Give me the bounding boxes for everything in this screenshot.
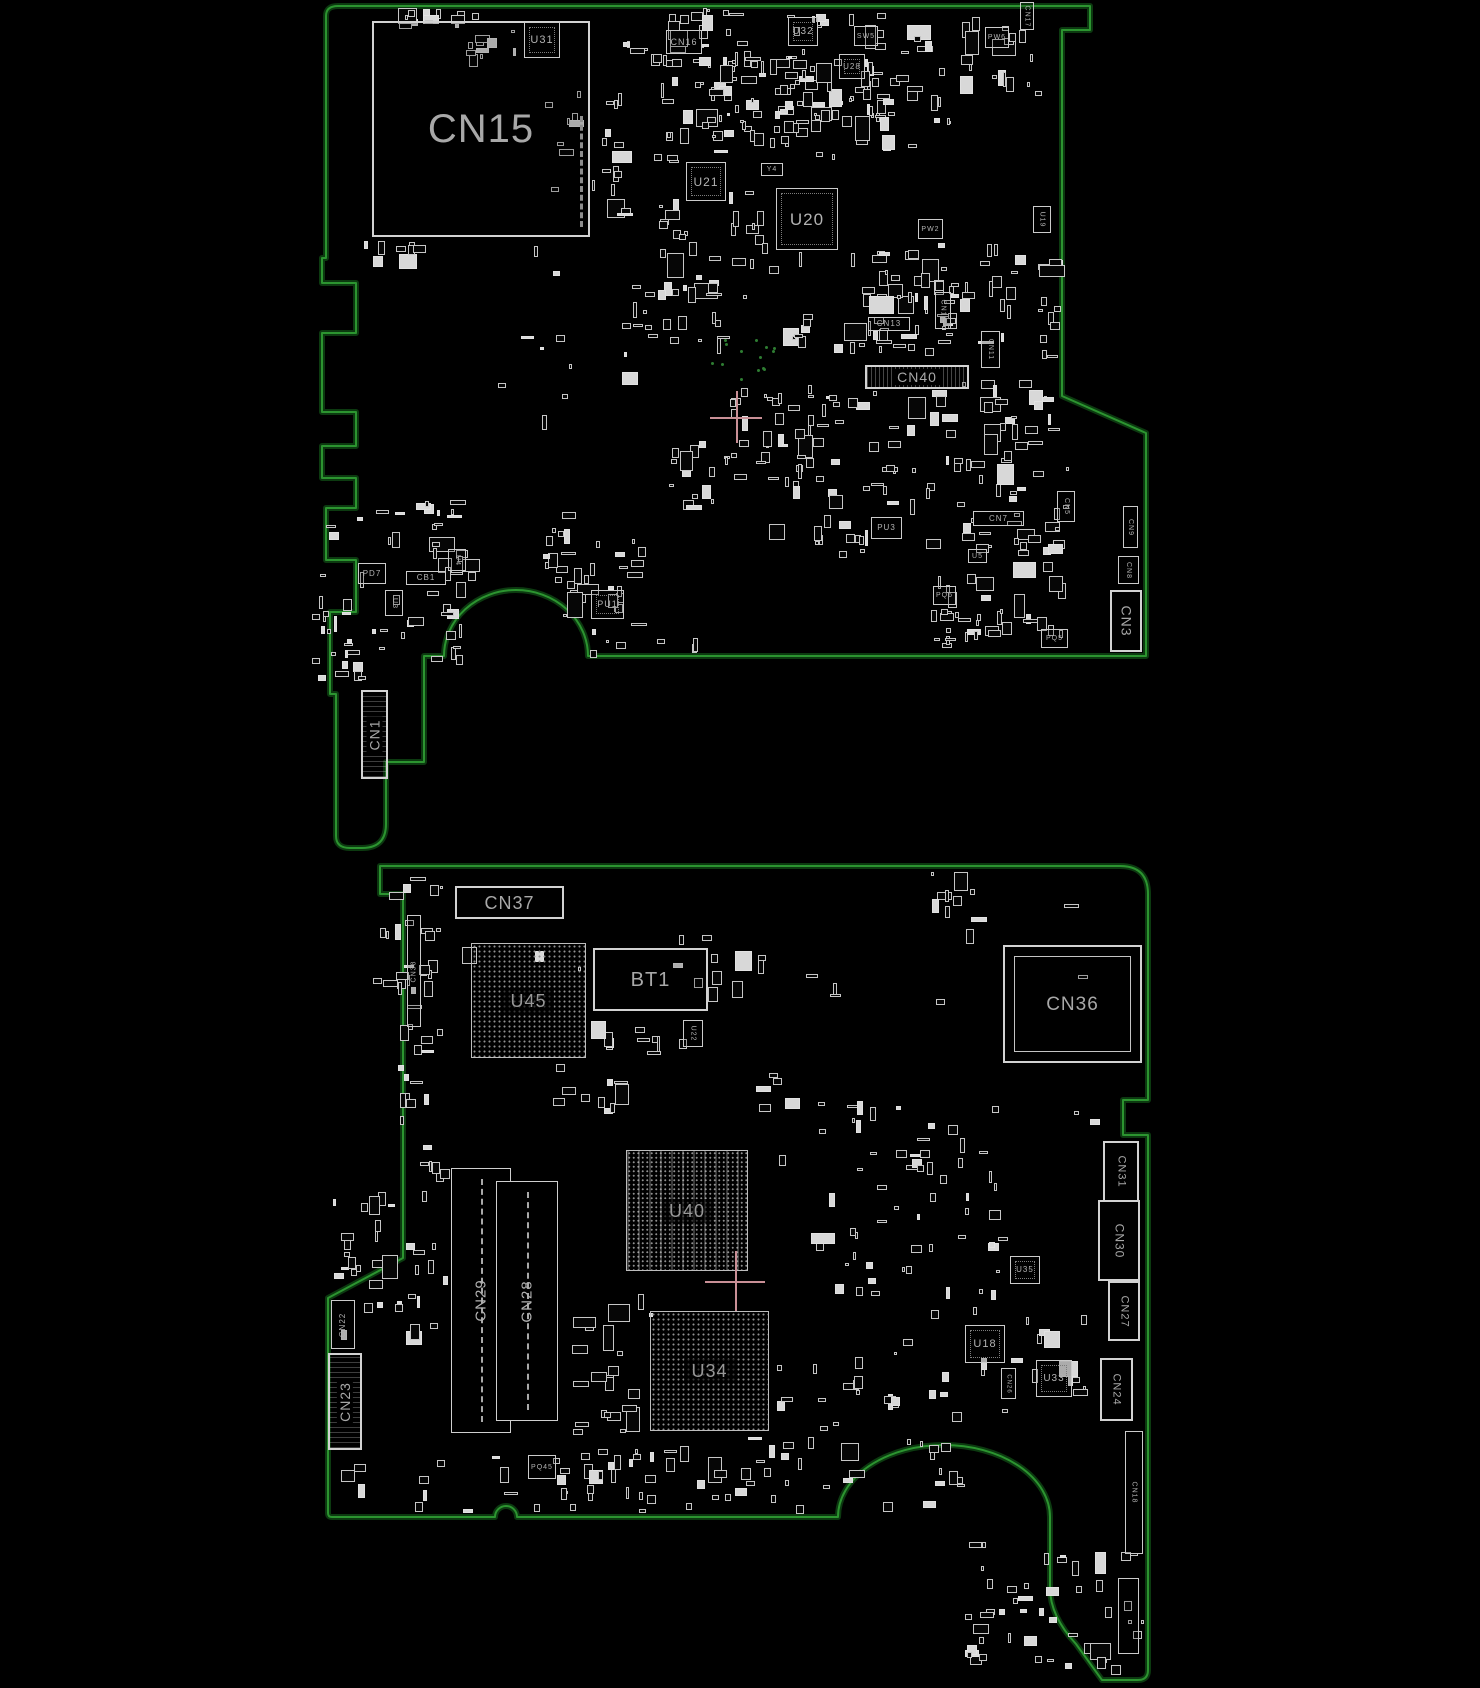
small-component [701,44,709,47]
small-component [708,283,718,293]
small-component [567,592,583,618]
small-component [323,611,329,617]
component-label: U34 [684,1359,734,1383]
component-label: PQ5 [1046,635,1063,642]
small-component [1007,1586,1017,1593]
small-component [857,1168,863,1171]
component-label: CN30 [1113,1223,1125,1258]
small-component [771,1495,776,1503]
small-component [1028,441,1043,445]
small-component [732,981,743,998]
small-component [803,314,813,320]
small-component [380,629,388,632]
component-label: CN8 [1125,561,1132,578]
small-component [632,285,641,289]
small-component [562,394,568,399]
small-component [1023,619,1038,623]
component-label: CN29 [473,1279,488,1321]
small-component [424,1094,429,1105]
small-component [671,459,677,464]
small-component [631,623,647,626]
component-cn24: CN24 [1100,1358,1133,1421]
small-component [564,529,570,544]
small-component [492,1456,500,1459]
small-component [639,1492,643,1500]
small-component [780,85,788,95]
small-component [877,13,886,19]
small-component [572,1345,588,1354]
small-component [980,1612,994,1618]
small-component [623,42,630,47]
small-component [622,372,638,385]
small-component [602,169,611,173]
small-component [327,629,331,634]
small-component [931,610,937,622]
small-component [798,464,802,479]
small-component [358,676,366,680]
small-component [885,270,888,275]
small-component [854,1376,863,1389]
small-component [417,1296,420,1308]
small-component [680,15,689,24]
small-component [591,1372,607,1382]
small-component [614,171,622,178]
component-u34: U34 [650,1311,769,1431]
small-component [711,954,718,963]
small-component [344,1240,351,1250]
small-component [955,612,959,618]
small-component [965,1614,972,1620]
small-component [989,1242,995,1248]
small-component [555,577,562,583]
small-component [679,234,686,240]
via-dot [740,378,743,381]
small-component [1035,91,1042,96]
small-component [423,1145,432,1150]
small-component [398,982,402,995]
small-component [425,931,435,941]
small-component [321,626,325,634]
small-component [979,532,991,535]
small-component [692,494,698,499]
small-component [995,399,1008,405]
small-component [859,343,865,347]
component-pq5: PQ5 [1041,629,1068,648]
small-component [903,1339,913,1346]
component-label: CN40 [894,369,940,385]
component-u4: U4 [448,549,466,571]
small-component [813,438,824,447]
crosshair-fiducial [710,391,762,443]
small-component [957,502,965,507]
small-component [561,1488,567,1500]
small-component [873,331,878,340]
component-u33: U33 [1036,1360,1072,1397]
small-component [312,614,320,620]
small-component [873,72,883,75]
small-component [938,243,945,248]
small-component [626,1487,629,1499]
small-component [1090,1119,1100,1125]
small-component [1004,451,1012,461]
small-component [562,512,576,519]
component-cn3: CN3 [1110,590,1142,652]
small-component [432,542,440,547]
small-component [936,396,946,407]
small-component [1048,544,1063,554]
component-label: CN38 [411,960,418,982]
small-component [829,495,843,509]
small-component [865,530,868,546]
component-label: PU3 [877,524,896,532]
small-component [714,1470,727,1478]
small-component [813,1364,817,1374]
small-component [624,352,627,357]
small-component [406,1243,415,1250]
component-u21: U21 [686,162,726,201]
small-component [846,534,855,543]
small-component [782,444,788,447]
small-component [540,347,544,350]
small-component [709,256,721,261]
small-component [1010,491,1017,495]
small-component [1074,1111,1079,1115]
small-component [608,1366,619,1376]
small-component [434,523,443,526]
small-component [948,1125,958,1135]
small-component [869,442,879,452]
component-cn28: CN28 [496,1181,558,1421]
component-label: U19 [1039,212,1046,228]
small-component [929,1445,939,1453]
small-component [938,340,951,344]
small-component [896,1106,901,1110]
small-component [775,413,784,425]
small-component [979,1289,983,1294]
small-component [936,999,945,1005]
small-component [989,1210,1001,1220]
small-component [364,1303,373,1313]
small-component [935,281,944,291]
small-component [751,98,754,103]
small-component [331,652,336,656]
small-component [686,1503,692,1510]
small-component [1040,335,1047,343]
component-bottom-connector-22 [1118,1578,1139,1654]
small-component [553,271,560,276]
small-component [762,243,768,254]
small-component [706,293,722,296]
small-component [432,1243,436,1250]
small-component [797,455,806,459]
small-component [735,1488,747,1496]
small-component [908,344,915,351]
small-component [654,154,662,161]
small-component [669,160,679,163]
via-dot [724,339,727,342]
small-component [372,629,376,634]
small-component [1025,426,1038,434]
small-component [926,488,930,499]
small-component [756,461,766,464]
small-component [446,631,456,640]
small-component [660,249,666,258]
small-component [592,180,595,191]
component-label: CN27 [1119,1295,1130,1327]
small-component [945,638,956,641]
small-component [712,971,722,985]
small-component [946,456,949,465]
small-component [1072,1561,1079,1576]
small-component [753,111,762,118]
small-component [1000,299,1005,312]
small-component [833,402,840,407]
component-cn8: CN8 [1118,556,1139,584]
small-component [415,1265,419,1275]
small-component [942,1372,949,1382]
small-component [376,510,389,514]
via-dot [759,356,762,359]
small-component [907,425,915,436]
small-component [908,292,912,303]
small-component [774,126,780,133]
small-component [863,89,871,100]
small-component [652,1036,658,1043]
small-component [1006,77,1014,92]
small-component [932,899,939,913]
small-component [961,55,973,65]
small-component [603,1325,614,1351]
small-component [1039,1608,1044,1616]
component-cb1: CB1 [406,571,446,585]
small-component [1013,562,1036,578]
small-component [764,1468,771,1477]
small-component [908,144,917,148]
small-component [887,501,899,505]
component-u5: U5 [968,549,987,563]
small-component [437,510,440,516]
small-component [608,1304,630,1322]
small-component [587,1485,594,1494]
crosshair-fiducial [705,1251,765,1311]
small-component [829,395,837,401]
small-component [776,59,790,68]
small-component [773,1078,782,1085]
small-component [740,120,744,123]
small-component [386,931,389,939]
small-component [923,1501,936,1508]
small-component [679,935,684,945]
small-component [672,77,678,86]
small-component [1055,527,1060,531]
small-component [1047,1659,1054,1662]
small-component [615,552,625,557]
small-component [839,551,847,558]
component-bt1: BT1 [593,948,708,1011]
small-component [715,320,721,327]
small-component [856,1287,863,1296]
small-component [698,339,702,342]
small-component [552,528,556,533]
small-component [342,612,351,615]
small-component [945,890,949,902]
small-component [977,614,981,621]
component-label: CN31 [1116,1155,1127,1187]
small-component [833,1422,839,1426]
small-component [769,1445,775,1458]
component-label: U20 [790,211,824,228]
small-component [389,892,404,900]
small-component [891,275,900,281]
component-pw6: PW6 [985,27,1009,48]
small-component [1048,428,1060,431]
small-component [1035,1656,1042,1663]
small-component [882,135,895,150]
small-component [1015,255,1026,265]
small-component [732,258,746,266]
small-component [873,391,877,396]
pcb-boardview: CN15U31CN16U32SW5U28PW6CN17U21Y4U20PW2U1… [0,0,1480,1688]
small-component [672,448,679,458]
small-component [663,319,671,330]
small-component [1008,1633,1011,1643]
small-component [966,1193,969,1201]
component-label: CB1 [417,574,436,582]
small-component [927,1162,933,1175]
small-component [382,1255,398,1279]
small-component [883,99,894,105]
small-component [588,1493,593,1501]
small-component [1027,82,1030,87]
small-component [725,457,728,465]
small-component [908,250,919,259]
small-component [570,1504,576,1511]
small-component [556,1064,565,1072]
small-component [917,1138,930,1141]
small-component [926,539,941,549]
small-component [1095,1552,1106,1574]
small-component [794,334,803,338]
small-component [1064,904,1079,908]
small-component [335,671,349,677]
small-component [750,259,754,269]
component-u22: U22 [683,1020,703,1047]
small-component [1068,1633,1078,1637]
small-component [633,302,637,318]
small-component [1054,306,1061,312]
small-component [958,1158,963,1168]
small-component [795,429,805,439]
small-component [410,877,426,881]
small-component [960,1138,965,1153]
small-component [888,441,901,448]
small-component [802,70,806,79]
small-component [392,532,400,548]
small-component [930,1193,936,1202]
small-component [639,1509,646,1513]
small-component [658,290,666,300]
small-component [785,477,789,487]
small-component [702,485,711,499]
small-component [831,459,840,465]
small-component [644,48,648,51]
small-component [664,1450,677,1453]
small-component [596,541,600,548]
small-component [880,117,889,131]
small-component [630,48,645,54]
small-component [758,960,764,974]
small-component [591,1021,606,1039]
small-component [816,476,824,482]
small-component [441,612,454,616]
small-component [453,646,461,649]
small-component [849,98,852,102]
small-component [793,60,807,69]
small-component [643,310,647,314]
small-component [375,1231,378,1242]
small-component [341,1470,355,1482]
small-component [345,650,348,658]
small-component [979,1654,987,1661]
small-component [775,111,780,119]
small-component [979,475,983,484]
small-component [369,1280,383,1289]
small-component [929,1390,936,1399]
small-component [818,1398,826,1402]
small-component [357,517,363,521]
small-component [383,980,398,987]
component-label: CN3 [1119,605,1133,636]
small-component [940,1392,948,1397]
small-component [906,1266,912,1274]
small-component [665,210,680,220]
board-outlines [0,0,1480,1688]
small-component [430,1323,438,1329]
component-label: BT1 [631,970,671,990]
component-pq6: PQ6 [933,586,956,605]
small-component [750,130,755,142]
small-component [842,116,852,127]
small-component [1141,1620,1144,1624]
via-dot [757,369,760,372]
small-component [879,252,890,256]
small-component [987,244,992,257]
small-component [724,130,734,137]
small-component [447,515,462,518]
component-cn18: CN18 [1125,1431,1143,1554]
small-component [380,928,386,938]
small-component [869,296,894,314]
small-component [798,1458,802,1470]
small-component [896,1150,907,1158]
component-label: PQ45 [531,1464,553,1471]
small-component [942,414,958,422]
small-component [419,1476,429,1484]
small-component [1007,305,1011,319]
small-component [972,17,980,31]
small-component [877,1185,887,1190]
small-component [633,1454,641,1460]
small-component [645,292,655,297]
small-component [996,484,1001,497]
small-component [456,655,463,665]
small-component [567,581,575,589]
small-component [346,650,360,655]
small-component [877,94,890,99]
small-component [699,57,711,66]
small-component [803,92,813,107]
component-cn22: CN22 [331,1300,355,1349]
